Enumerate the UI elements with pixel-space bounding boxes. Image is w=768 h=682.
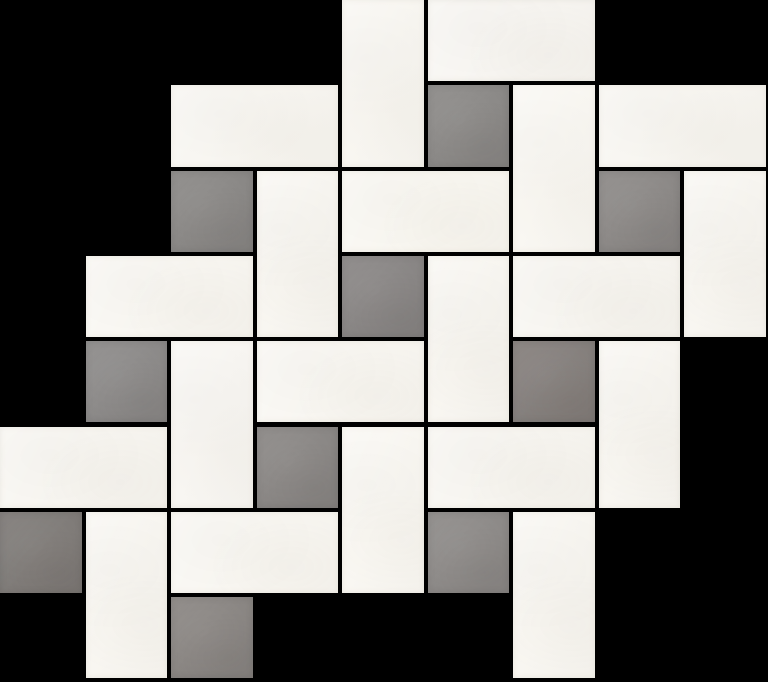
mosaic-tile-sheet [0, 0, 768, 682]
white-horizontal-tile [0, 427, 167, 508]
white-vertical-tile [513, 85, 595, 252]
white-vertical-tile [171, 341, 253, 508]
gray-square-tile [0, 512, 82, 593]
white-vertical-tile [342, 427, 424, 594]
white-vertical-tile [684, 171, 766, 338]
white-horizontal-tile [342, 171, 509, 252]
white-vertical-tile [86, 512, 168, 679]
white-horizontal-tile [171, 85, 338, 166]
gray-square-tile [342, 256, 424, 337]
white-vertical-tile [342, 0, 424, 167]
gray-square-tile [428, 85, 510, 166]
white-horizontal-tile [86, 256, 253, 337]
white-horizontal-tile [171, 512, 338, 593]
gray-square-tile [86, 341, 168, 422]
gray-square-tile [171, 597, 253, 678]
gray-square-tile [513, 341, 595, 422]
white-vertical-tile [257, 171, 339, 338]
white-horizontal-tile [428, 427, 595, 508]
white-horizontal-tile [428, 0, 595, 81]
white-vertical-tile [513, 512, 595, 679]
gray-square-tile [171, 171, 253, 252]
black-background: { "scene": { "kind": "mosaic-tile-produc… [0, 0, 768, 682]
white-vertical-tile [599, 341, 681, 508]
white-horizontal-tile [513, 256, 680, 337]
white-vertical-tile [428, 256, 510, 423]
gray-square-tile [428, 512, 510, 593]
gray-square-tile [599, 171, 681, 252]
gray-square-tile [257, 427, 339, 508]
white-horizontal-tile [599, 85, 766, 166]
white-horizontal-tile [257, 341, 424, 422]
